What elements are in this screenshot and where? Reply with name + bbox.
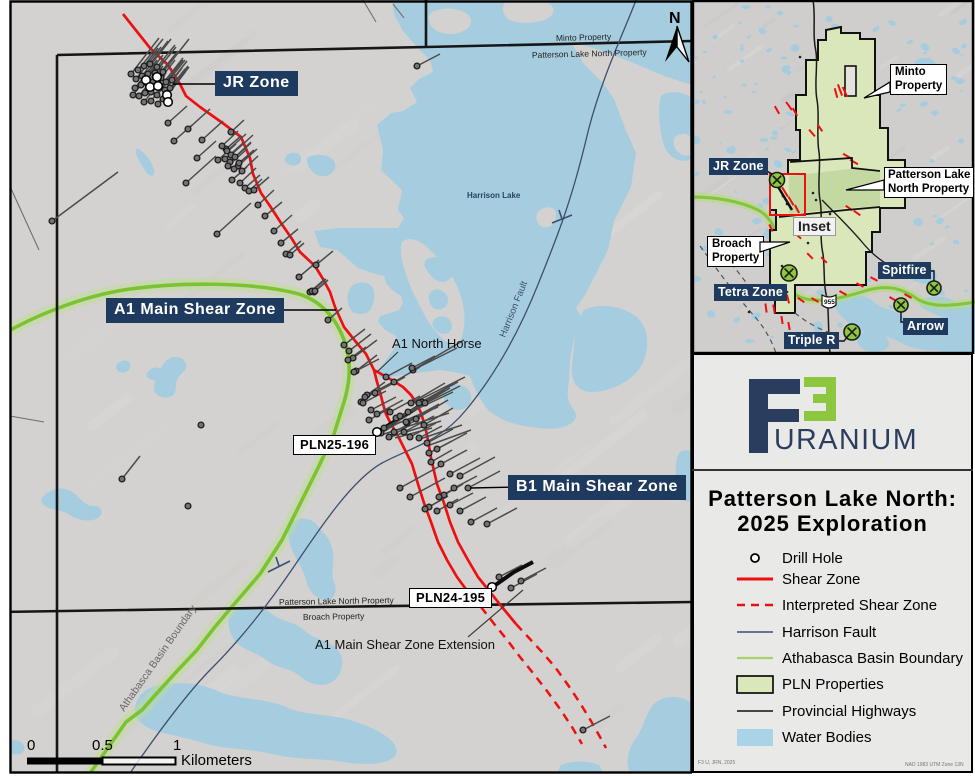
svg-text:PLN Properties: PLN Properties bbox=[782, 676, 884, 693]
svg-text:Kilometers: Kilometers bbox=[181, 752, 252, 769]
svg-text:Harrison Lake: Harrison Lake bbox=[467, 191, 521, 200]
svg-text:Interpreted Shear Zone: Interpreted Shear Zone bbox=[782, 597, 937, 614]
svg-text:Harrison Fault: Harrison Fault bbox=[782, 624, 877, 641]
svg-text:URANIUM: URANIUM bbox=[774, 424, 918, 455]
svg-text:Water Bodies: Water Bodies bbox=[782, 729, 871, 746]
svg-text:Broach Property: Broach Property bbox=[303, 611, 365, 622]
svg-text:Minto Property: Minto Property bbox=[556, 32, 612, 43]
svg-text:0: 0 bbox=[27, 737, 35, 754]
svg-text:0.5: 0.5 bbox=[92, 737, 113, 754]
svg-text:955: 955 bbox=[824, 299, 835, 306]
svg-text:N: N bbox=[669, 10, 681, 27]
svg-text:Provincial Highways: Provincial Highways bbox=[782, 703, 916, 720]
svg-text:Patterson Lake North Property: Patterson Lake North Property bbox=[279, 595, 395, 607]
svg-text:Shear Zone: Shear Zone bbox=[782, 571, 860, 588]
svg-text:Athabasca Basin Boundary: Athabasca Basin Boundary bbox=[782, 650, 963, 667]
svg-text:Drill Hole: Drill Hole bbox=[782, 550, 843, 567]
